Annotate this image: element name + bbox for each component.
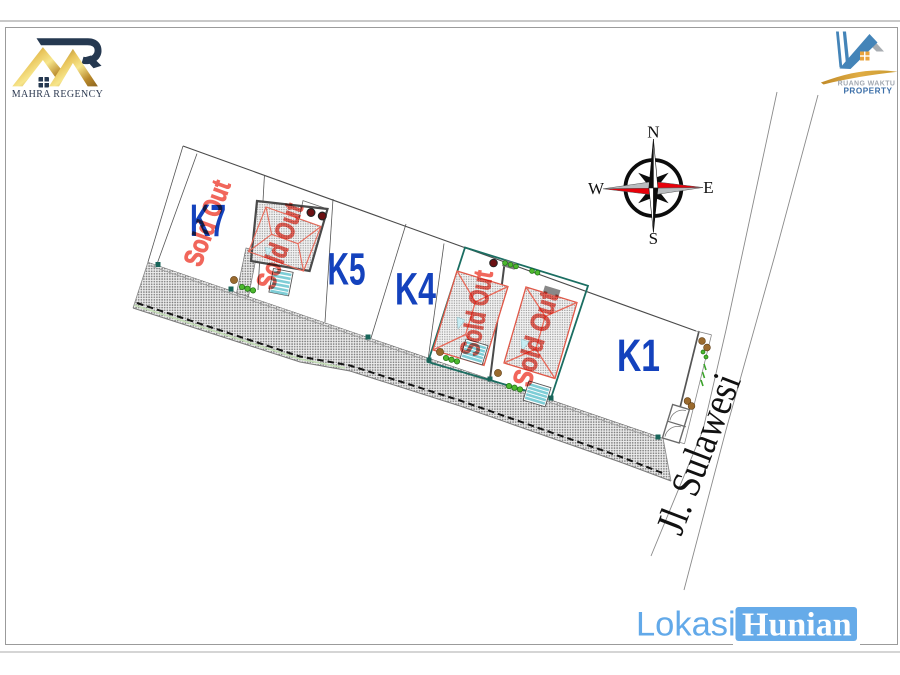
svg-text:PROPERTY: PROPERTY (843, 87, 892, 96)
svg-text:W: W (588, 179, 605, 198)
svg-text:N: N (647, 123, 659, 142)
svg-text:Lokasi: Lokasi (636, 606, 736, 644)
svg-text:MAHRA REGENCY: MAHRA REGENCY (12, 89, 104, 100)
svg-text:K5: K5 (328, 244, 366, 295)
svg-text:K1: K1 (617, 330, 660, 381)
svg-text:K4: K4 (395, 264, 436, 315)
svg-text:Hunian: Hunian (742, 607, 852, 644)
svg-text:S: S (649, 229, 658, 248)
svg-text:E: E (703, 178, 713, 197)
